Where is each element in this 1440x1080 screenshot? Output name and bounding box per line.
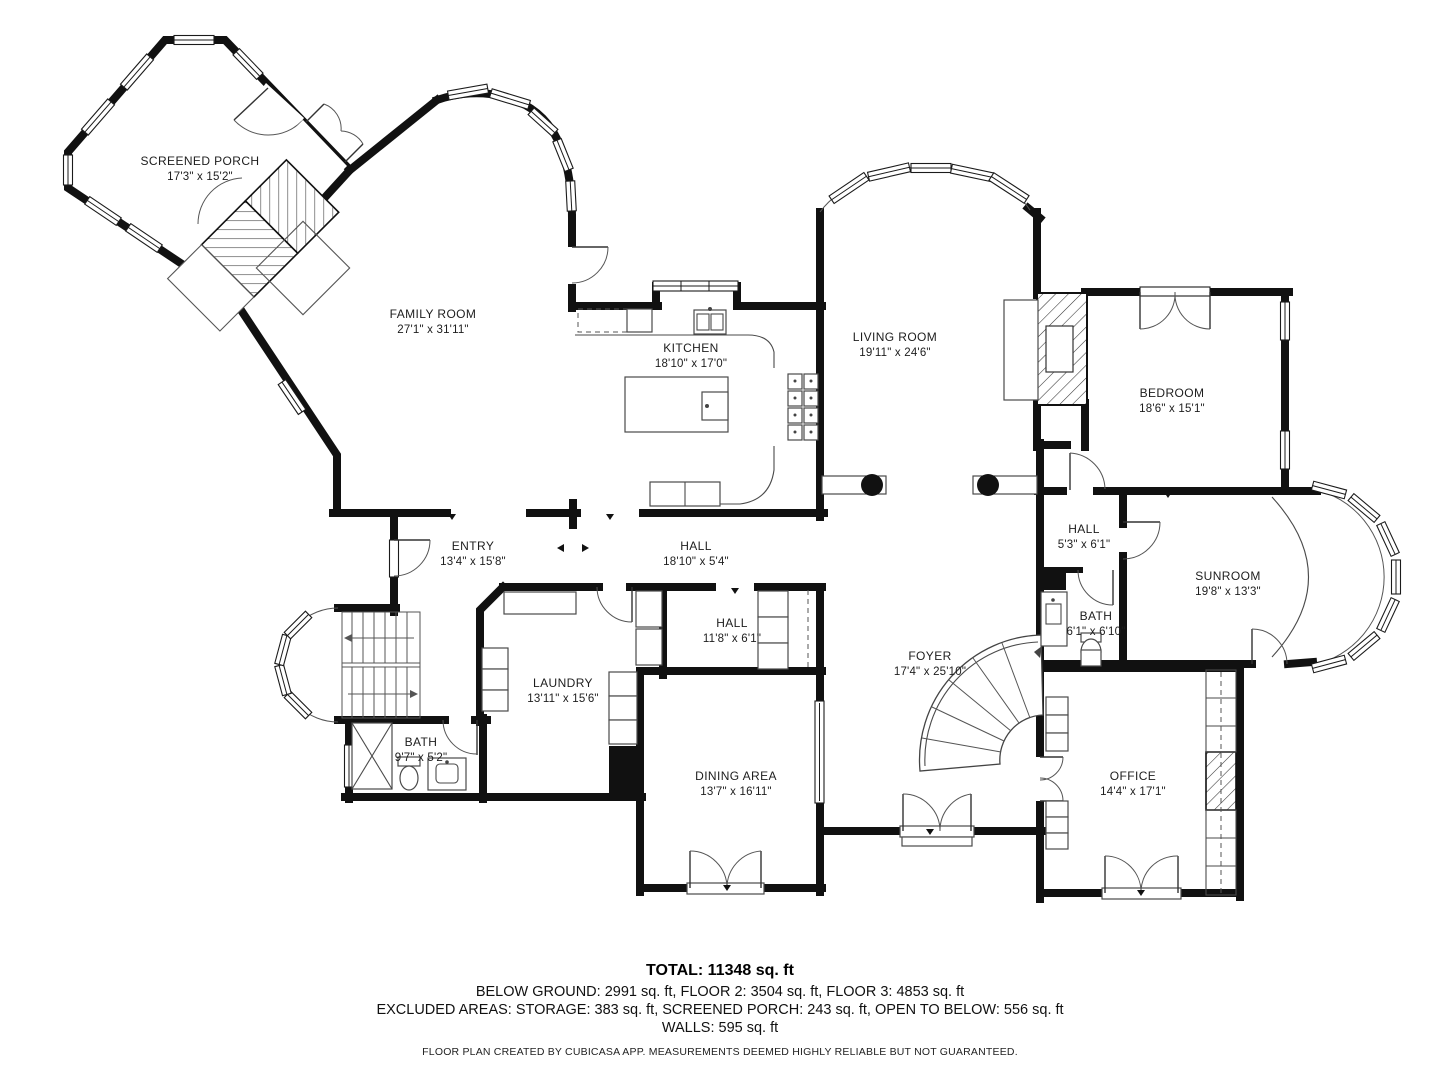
room-label-sunroom: SUNROOM xyxy=(1195,569,1260,583)
room-dims-laundry: 13'11" x 15'6" xyxy=(527,693,598,705)
room-label-family-room: FAMILY ROOM xyxy=(390,307,477,321)
living-room-fireplace xyxy=(1004,293,1087,405)
room-dims-family-room: 27'1" x 31'11" xyxy=(397,324,468,336)
room-label-bath-97: BATH xyxy=(405,735,438,749)
room-label-screened-porch: SCREENED PORCH xyxy=(141,154,260,168)
room-dims-bath-small: 6'1" x 6'10" xyxy=(1066,626,1125,638)
room-label-dining-area: DINING AREA xyxy=(695,769,777,783)
room-dims-hall-center: 18'10" x 5'4" xyxy=(663,556,729,568)
room-dims-office: 14'4" x 17'1" xyxy=(1100,786,1166,798)
floor-areas-text: BELOW GROUND: 2991 sq. ft, FLOOR 2: 3504… xyxy=(476,984,964,1000)
room-dims-hall-small: 5'3" x 6'1" xyxy=(1058,539,1110,551)
floor-plan-page: SCREENED PORCH 17'3" x 15'2" FAMILY ROOM… xyxy=(0,0,1440,1080)
room-dims-bath-97: 9'7" x 5'2" xyxy=(395,752,447,764)
room-dims-foyer: 17'4" x 25'10" xyxy=(894,666,966,678)
room-label-bedroom: BEDROOM xyxy=(1140,386,1205,400)
room-label-hall-center: HALL xyxy=(680,539,712,553)
room-dims-living-room: 19'11" x 24'6" xyxy=(859,347,930,359)
room-dims-entry: 13'4" x 15'8" xyxy=(440,556,506,568)
room-label-entry: ENTRY xyxy=(452,539,494,553)
credit-text: FLOOR PLAN CREATED BY CUBICASA APP. MEAS… xyxy=(422,1046,1018,1058)
room-label-hall-11: HALL xyxy=(716,616,748,630)
room-dims-hall-11: 11'8" x 6'1" xyxy=(703,633,761,645)
room-dims-kitchen: 18'10" x 17'0" xyxy=(655,358,727,370)
room-label-kitchen: KITCHEN xyxy=(663,341,718,355)
room-label-hall-small: HALL xyxy=(1068,522,1100,536)
room-dims-sunroom: 19'8" x 13'3" xyxy=(1195,586,1261,598)
room-label-laundry: LAUNDRY xyxy=(533,676,593,690)
room-dims-screened-porch: 17'3" x 15'2" xyxy=(167,171,233,183)
excluded-areas-text: EXCLUDED AREAS: STORAGE: 383 sq. ft, SCR… xyxy=(376,1002,1063,1018)
room-dims-bedroom: 18'6" x 15'1" xyxy=(1139,403,1205,415)
room-label-bath-small: BATH xyxy=(1080,609,1113,623)
walls-area-text: WALLS: 595 sq. ft xyxy=(662,1020,778,1036)
floor-plan-canvas: SCREENED PORCH 17'3" x 15'2" FAMILY ROOM… xyxy=(0,0,1440,1080)
room-label-foyer: FOYER xyxy=(908,649,951,663)
total-area-text: TOTAL: 11348 sq. ft xyxy=(646,962,795,979)
room-label-living-room: LIVING ROOM xyxy=(853,330,937,344)
room-label-office: OFFICE xyxy=(1110,769,1156,783)
room-dims-dining-area: 13'7" x 16'11" xyxy=(700,786,771,798)
